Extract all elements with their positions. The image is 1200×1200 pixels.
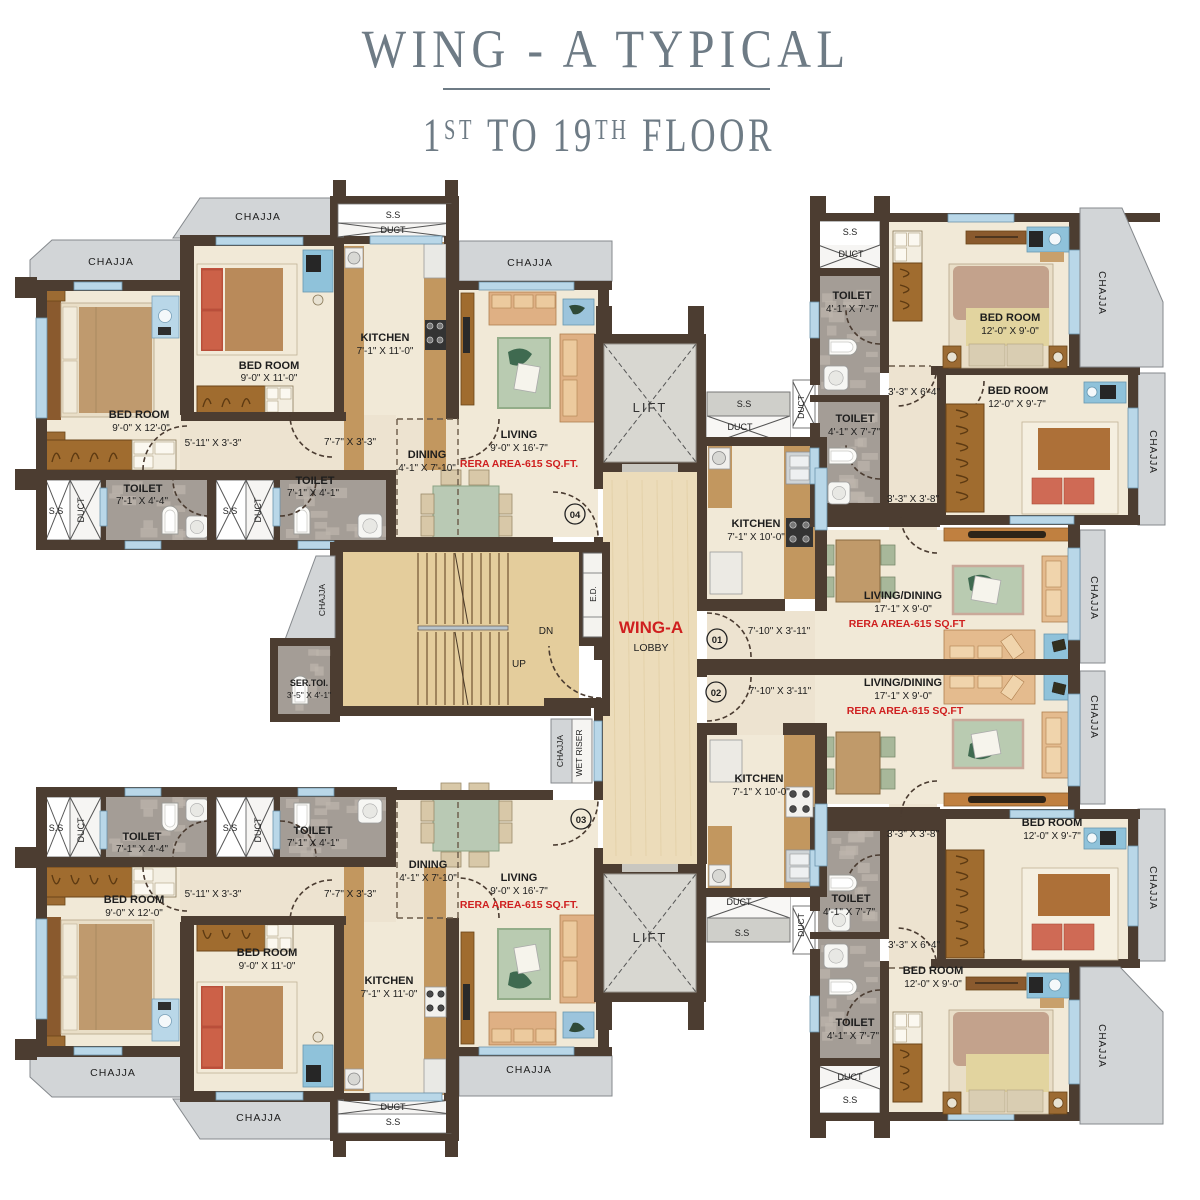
svg-text:9'-0" X 12'-0": 9'-0" X 12'-0": [105, 908, 163, 919]
svg-text:BED ROOM: BED ROOM: [980, 312, 1041, 324]
svg-text:CHAJJA: CHAJJA: [1147, 430, 1158, 474]
svg-text:17'-1" X 9'-0": 17'-1" X 9'-0": [874, 691, 932, 702]
svg-text:CHAJJA: CHAJJA: [1088, 576, 1099, 620]
svg-text:12'-0" X 9'-7": 12'-0" X 9'-7": [988, 399, 1046, 410]
svg-text:TOILET: TOILET: [124, 483, 163, 495]
svg-text:BED ROOM: BED ROOM: [109, 409, 170, 421]
svg-text:04: 04: [570, 510, 581, 521]
svg-text:TOILET: TOILET: [294, 825, 333, 837]
svg-text:7'-10" X 3'-11": 7'-10" X 3'-11": [749, 686, 812, 697]
svg-text:RERA AREA-615 SQ.FT.: RERA AREA-615 SQ.FT.: [460, 458, 578, 470]
svg-text:9'-0" X 12'-0": 9'-0" X 12'-0": [112, 423, 170, 434]
svg-text:5'-11" X 3'-3": 5'-11" X 3'-3": [185, 889, 242, 900]
svg-text:9'-0" X 16'-7": 9'-0" X 16'-7": [490, 886, 548, 897]
svg-text:BED ROOM: BED ROOM: [988, 385, 1049, 397]
svg-text:UP: UP: [512, 659, 526, 670]
svg-text:TOILET: TOILET: [836, 413, 875, 425]
svg-text:CHAJJA: CHAJJA: [90, 1067, 136, 1079]
svg-text:02: 02: [711, 688, 722, 699]
svg-text:S.S: S.S: [843, 1095, 858, 1105]
svg-text:S.S: S.S: [843, 227, 858, 237]
svg-text:7'-7" X 3'-3": 7'-7" X 3'-3": [324, 437, 377, 448]
svg-text:LIFT: LIFT: [633, 930, 668, 945]
svg-text:4'-1" X 7'-7": 4'-1" X 7'-7": [823, 907, 876, 918]
svg-text:RERA AREA-615 SQ.FT: RERA AREA-615 SQ.FT: [847, 705, 964, 717]
svg-text:KITCHEN: KITCHEN: [361, 332, 410, 344]
svg-text:S.S: S.S: [386, 1117, 401, 1127]
svg-text:CHAJJA: CHAJJA: [236, 1112, 282, 1124]
svg-text:DUCT: DUCT: [76, 497, 86, 522]
svg-text:5'-11" X 3'-3": 5'-11" X 3'-3": [185, 438, 242, 449]
svg-text:WING-A: WING-A: [619, 618, 683, 637]
svg-text:CHAJJA: CHAJJA: [317, 584, 327, 616]
svg-text:CHAJJA: CHAJJA: [1088, 695, 1099, 739]
svg-text:DN: DN: [539, 626, 553, 637]
svg-text:3'-5" X 4'-1": 3'-5" X 4'-1": [287, 690, 331, 700]
svg-text:3'-3" X 6'-4": 3'-3" X 6'-4": [888, 940, 941, 951]
svg-text:S.S: S.S: [737, 399, 752, 409]
svg-text:TOILET: TOILET: [296, 475, 335, 487]
svg-text:LIVING: LIVING: [501, 429, 538, 441]
svg-text:SER.TOI.: SER.TOI.: [290, 678, 328, 688]
svg-text:BED ROOM: BED ROOM: [237, 947, 298, 959]
svg-text:WET RISER: WET RISER: [574, 729, 584, 776]
svg-text:3'-3" X 3'-8": 3'-3" X 3'-8": [887, 829, 940, 840]
svg-text:9'-0" X 11'-0": 9'-0" X 11'-0": [239, 961, 296, 972]
svg-text:12'-0" X 9'-7": 12'-0" X 9'-7": [1023, 831, 1081, 842]
svg-text:DUCT: DUCT: [253, 497, 263, 522]
svg-text:WING - A TYPICAL: WING - A TYPICAL: [362, 19, 850, 79]
svg-text:CHAJJA: CHAJJA: [507, 257, 553, 269]
svg-text:KITCHEN: KITCHEN: [735, 773, 784, 785]
svg-text:DUCT: DUCT: [381, 225, 406, 235]
svg-text:CHAJJA: CHAJJA: [506, 1064, 552, 1076]
svg-text:BED ROOM: BED ROOM: [903, 965, 964, 977]
svg-text:7'-1" X 4'-1": 7'-1" X 4'-1": [287, 838, 340, 849]
svg-text:LIVING/DINING: LIVING/DINING: [864, 677, 942, 689]
svg-text:BED ROOM: BED ROOM: [104, 894, 165, 906]
svg-text:7'-1" X 11'-0": 7'-1" X 11'-0": [361, 989, 418, 1000]
svg-text:7'-1" X 10'-0": 7'-1" X 10'-0": [732, 787, 790, 798]
svg-text:7'-1" X 4'-1": 7'-1" X 4'-1": [287, 488, 340, 499]
svg-text:RERA AREA-615 SQ.FT: RERA AREA-615 SQ.FT: [849, 618, 966, 630]
svg-text:DUCT: DUCT: [381, 1102, 406, 1112]
svg-text:TOILET: TOILET: [832, 893, 871, 905]
svg-text:12'-0" X 9'-0": 12'-0" X 9'-0": [904, 979, 962, 990]
svg-text:DUCT: DUCT: [727, 897, 752, 907]
svg-text:LIVING: LIVING: [501, 872, 538, 884]
svg-text:TOILET: TOILET: [833, 290, 872, 302]
svg-text:S.S: S.S: [49, 506, 64, 516]
svg-text:CHAJJA: CHAJJA: [1096, 271, 1107, 315]
svg-text:S.S: S.S: [223, 506, 238, 516]
svg-text:E.D.: E.D.: [589, 586, 598, 602]
svg-text:9'-0" X 16'-7": 9'-0" X 16'-7": [490, 443, 548, 454]
svg-text:LOBBY: LOBBY: [633, 642, 668, 654]
svg-text:BED ROOM: BED ROOM: [239, 360, 300, 372]
svg-text:4'-1" X 7'-7": 4'-1" X 7'-7": [827, 1031, 880, 1042]
svg-text:4'-1" X 7'-7": 4'-1" X 7'-7": [826, 304, 879, 315]
svg-text:DUCT: DUCT: [838, 1072, 863, 1082]
svg-text:3'-3" X 3'-8": 3'-3" X 3'-8": [887, 494, 940, 505]
svg-text:TOILET: TOILET: [836, 1017, 875, 1029]
svg-text:7'-1" X 4'-4": 7'-1" X 4'-4": [116, 844, 169, 855]
svg-text:KITCHEN: KITCHEN: [365, 975, 414, 987]
svg-text:CHAJJA: CHAJJA: [1147, 866, 1158, 910]
svg-text:S.S: S.S: [223, 823, 238, 833]
svg-text:4'-1" X 7'-10": 4'-1" X 7'-10": [398, 463, 456, 474]
svg-text:DUCT: DUCT: [796, 913, 806, 937]
svg-text:12'-0" X 9'-0": 12'-0" X 9'-0": [981, 326, 1039, 337]
svg-text:DUCT: DUCT: [253, 817, 263, 842]
svg-text:7'-1" X 11'-0": 7'-1" X 11'-0": [357, 346, 414, 357]
svg-text:DUCT: DUCT: [839, 249, 864, 259]
svg-text:4'-1" X 7'-10": 4'-1" X 7'-10": [399, 873, 457, 884]
svg-text:S.S: S.S: [735, 928, 750, 938]
svg-text:DINING: DINING: [408, 449, 447, 461]
svg-text:7'-1" X 10'-0": 7'-1" X 10'-0": [727, 532, 785, 543]
svg-text:DUCT: DUCT: [76, 817, 86, 842]
svg-text:DUCT: DUCT: [796, 395, 806, 419]
svg-text:CHAJJA: CHAJJA: [1096, 1024, 1107, 1068]
svg-text:7'-7" X 3'-3": 7'-7" X 3'-3": [324, 889, 377, 900]
svg-text:LIFT: LIFT: [633, 400, 668, 415]
svg-text:BED ROOM: BED ROOM: [1022, 817, 1083, 829]
svg-text:03: 03: [576, 815, 587, 826]
svg-text:TOILET: TOILET: [123, 831, 162, 843]
svg-text:17'-1" X 9'-0": 17'-1" X 9'-0": [874, 604, 932, 615]
svg-text:S.S: S.S: [386, 210, 401, 220]
svg-text:01: 01: [712, 635, 723, 646]
svg-text:4'-1" X 7'-7": 4'-1" X 7'-7": [828, 427, 881, 438]
svg-text:DINING: DINING: [409, 859, 448, 871]
svg-text:CHAJJA: CHAJJA: [235, 211, 281, 223]
svg-text:KITCHEN: KITCHEN: [732, 518, 781, 530]
svg-text:S.S: S.S: [49, 823, 64, 833]
svg-text:7'-1" X 4'-4": 7'-1" X 4'-4": [116, 496, 169, 507]
svg-text:CHAJJA: CHAJJA: [555, 735, 565, 767]
svg-text:RERA AREA-615 SQ.FT.: RERA AREA-615 SQ.FT.: [460, 899, 578, 911]
svg-text:DUCT: DUCT: [728, 422, 753, 432]
svg-text:9'-0" X 11'-0": 9'-0" X 11'-0": [241, 373, 298, 384]
svg-text:3'-3" X 6'-4": 3'-3" X 6'-4": [888, 387, 941, 398]
svg-text:LIVING/DINING: LIVING/DINING: [864, 590, 942, 602]
svg-text:CHAJJA: CHAJJA: [88, 256, 134, 268]
svg-text:7'-10" X 3'-11": 7'-10" X 3'-11": [748, 626, 811, 637]
